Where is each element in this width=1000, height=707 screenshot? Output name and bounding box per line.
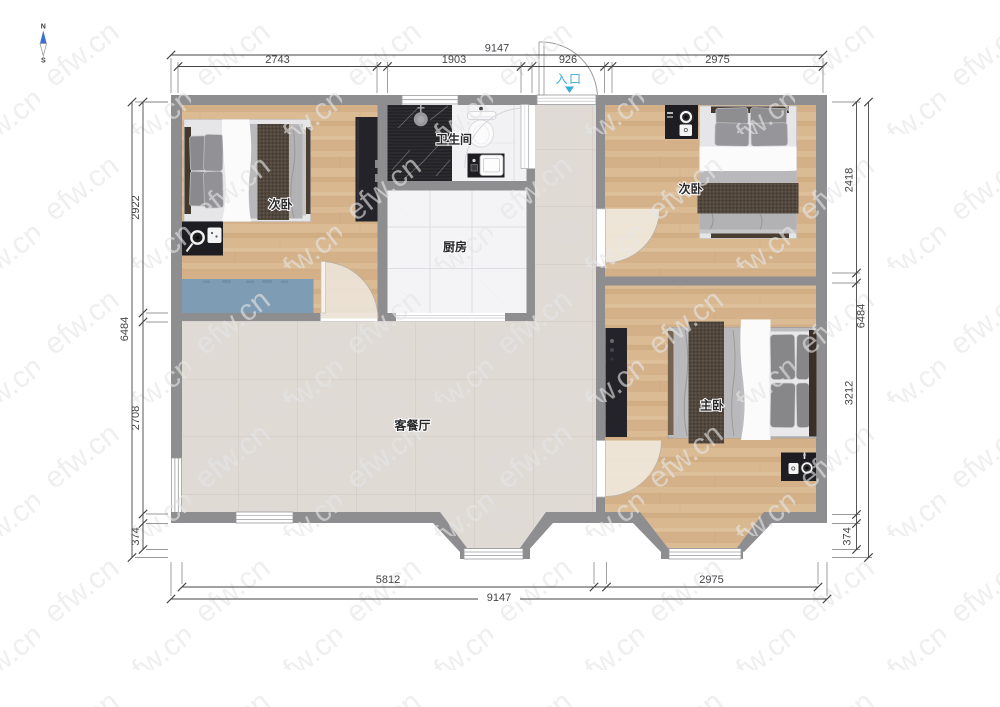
svg-text:2418: 2418 (844, 168, 856, 192)
svg-text:9147: 9147 (487, 592, 511, 604)
svg-text:6484: 6484 (119, 317, 131, 341)
svg-text:1903: 1903 (442, 54, 466, 66)
svg-text:次卧: 次卧 (678, 181, 702, 196)
svg-text:厨房: 厨房 (443, 239, 467, 254)
svg-text:次卧: 次卧 (268, 197, 292, 212)
svg-text:S: S (41, 58, 46, 65)
svg-text:3212: 3212 (844, 381, 856, 405)
svg-text:2975: 2975 (699, 574, 723, 586)
svg-text:9147: 9147 (485, 43, 509, 55)
svg-text:客餐厅: 客餐厅 (393, 418, 430, 433)
svg-text:N: N (41, 24, 46, 31)
svg-text:5812: 5812 (376, 574, 400, 586)
svg-text:6484: 6484 (856, 304, 868, 328)
svg-text:2975: 2975 (705, 54, 729, 66)
svg-text:926: 926 (559, 54, 577, 66)
svg-text:374: 374 (842, 527, 854, 545)
svg-text:2743: 2743 (265, 54, 289, 66)
svg-text:主卧: 主卧 (700, 398, 724, 413)
svg-text:入口: 入口 (555, 72, 582, 86)
svg-text:卫生间: 卫生间 (436, 132, 472, 147)
